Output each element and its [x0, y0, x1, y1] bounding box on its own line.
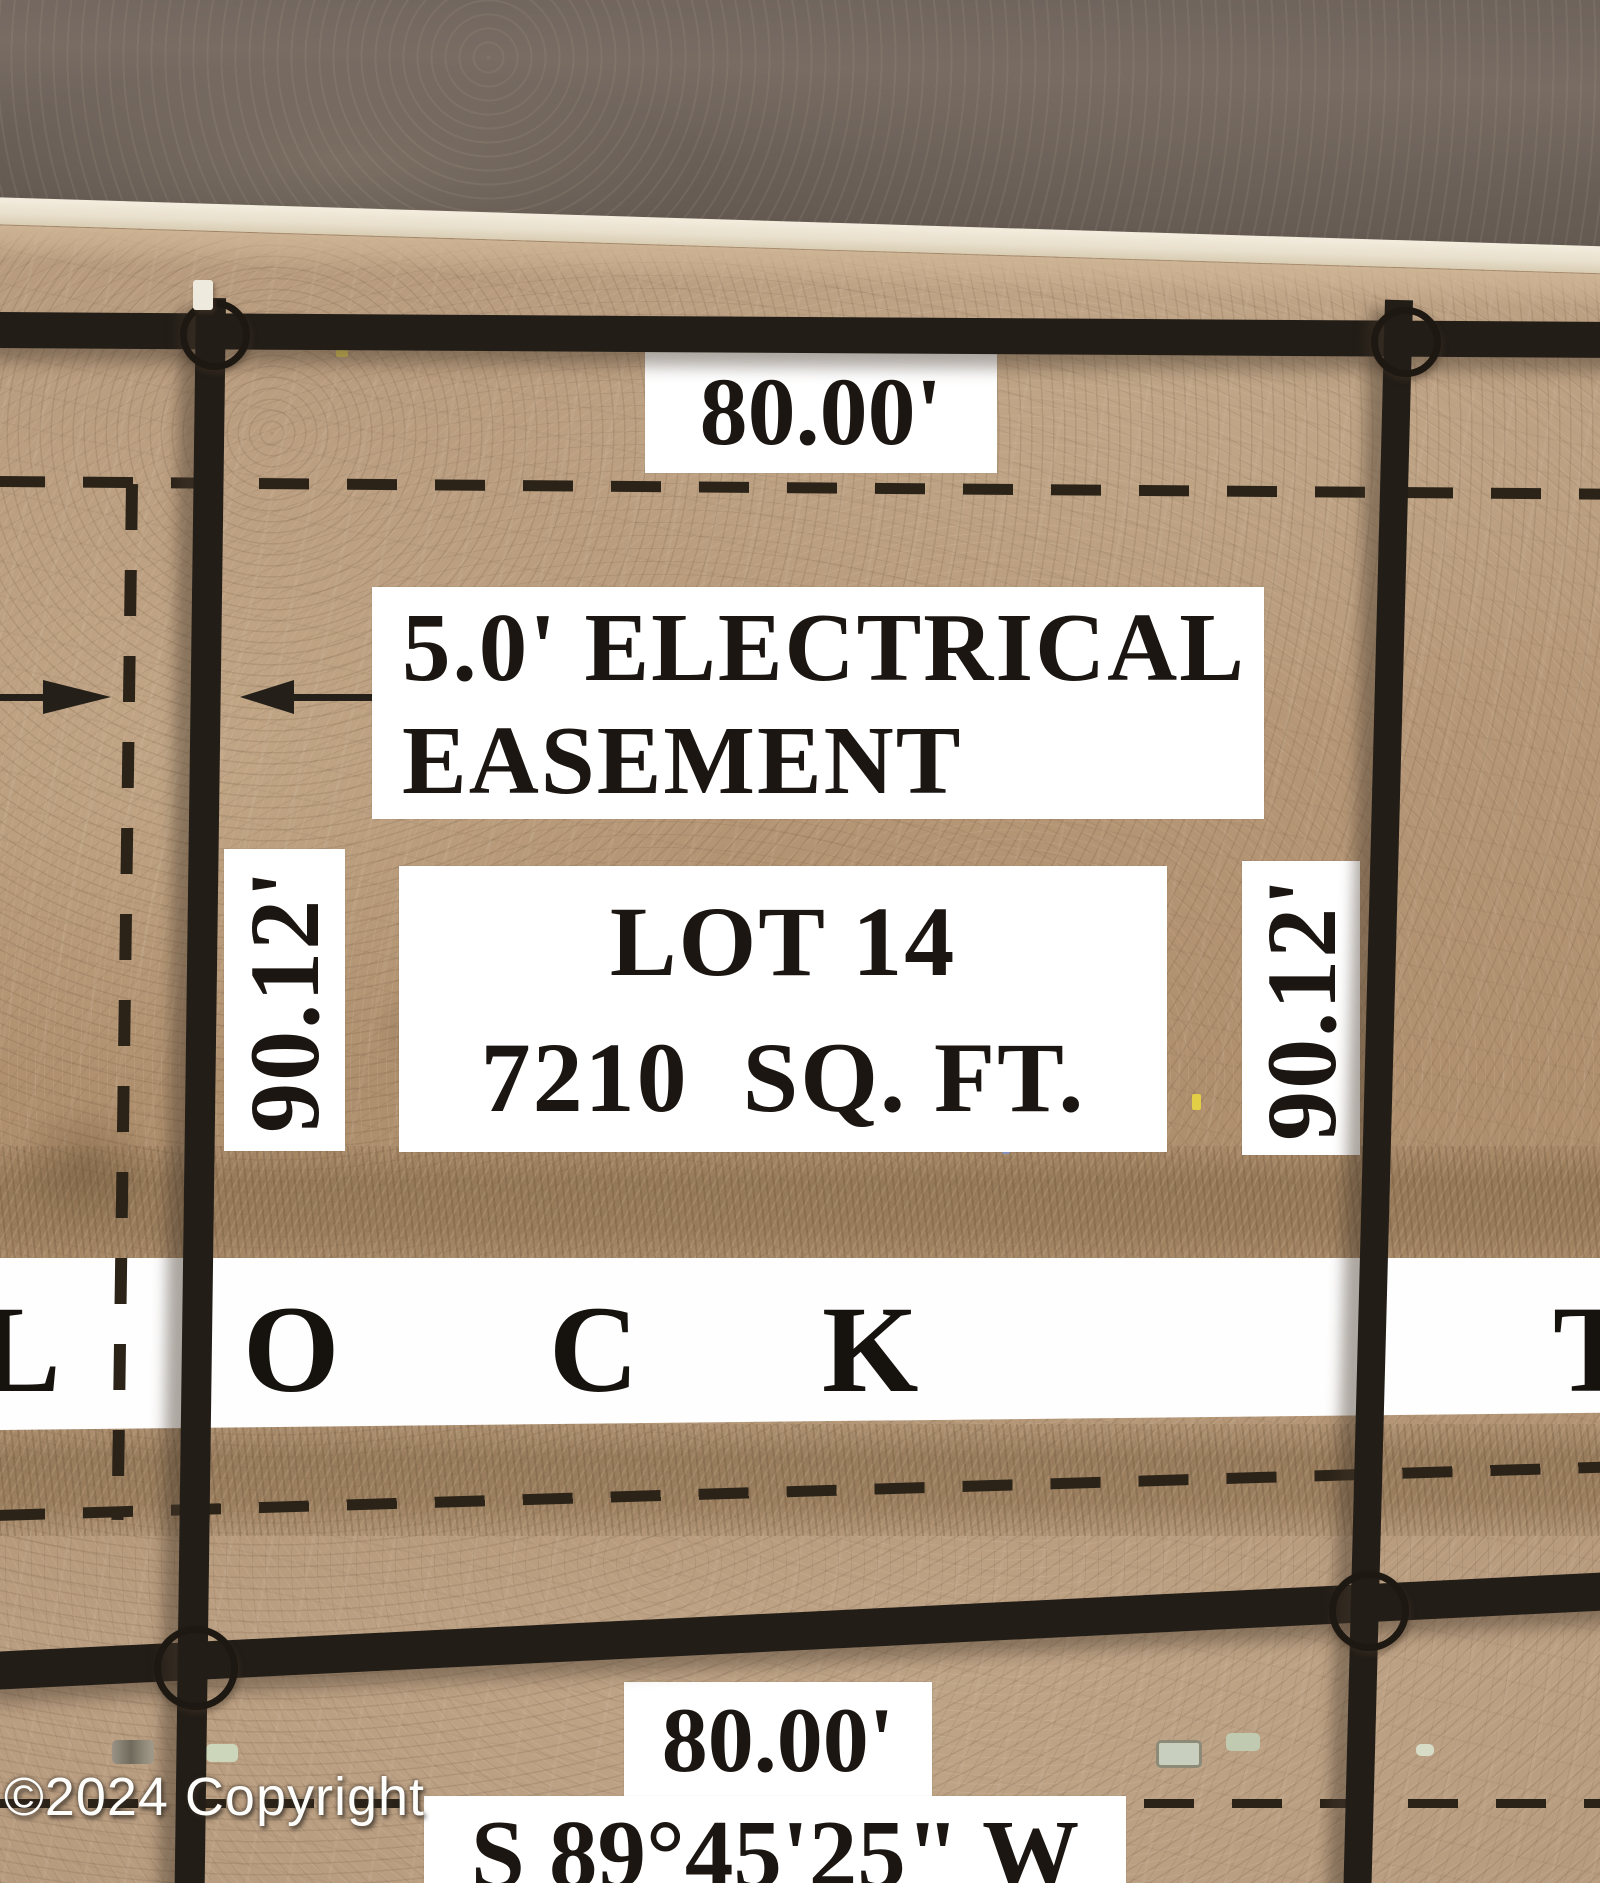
dimension-arrow-tail-left [0, 694, 44, 701]
frontage-dimension-text: 80.00' [700, 358, 943, 465]
parked-vehicle [1226, 1733, 1260, 1751]
easement-label-line1: 5.0' ELECTRICAL [372, 587, 1264, 704]
electrical-easement-label: 5.0' ELECTRICAL EASEMENT [372, 587, 1264, 819]
parked-vehicle [1156, 1740, 1202, 1768]
frontage-dimension-text-south: 80.00' [662, 1689, 895, 1791]
bearing-text: S 89°45'25" W [471, 1801, 1079, 1883]
survey-monument-circle-southwest [154, 1626, 238, 1710]
lot-label: LOT 14 7210 SQ. FT. [399, 866, 1167, 1152]
depth-dimension-text-east: 90.12' [1244, 876, 1359, 1141]
lot-number-text: LOT 14 [399, 866, 1167, 1010]
block-letter-t: T [1553, 1288, 1600, 1412]
survey-monument-circle-southeast [1329, 1571, 1409, 1651]
frontage-dimension-label-south: 80.00' [624, 1682, 932, 1798]
survey-monument-circle-northwest [180, 300, 250, 370]
survey-stake-marker [193, 280, 213, 310]
parked-vehicle [112, 1740, 154, 1764]
depth-dimension-label-east: 90.12' [1242, 861, 1360, 1155]
block-letter-l: L [0, 1288, 61, 1412]
bearing-label: S 89°45'25" W [424, 1796, 1126, 1883]
survey-monument-circle-northeast [1371, 307, 1441, 377]
block-letter-k: K [822, 1288, 918, 1412]
easement-label-line2: EASEMENT [372, 704, 1264, 817]
parked-vehicle [206, 1744, 238, 1762]
depth-dimension-text-west: 90.12' [227, 868, 342, 1133]
dimension-arrowhead-left-pointing [240, 680, 294, 714]
depth-dimension-label-west: 90.12' [224, 849, 345, 1151]
copyright-watermark: ©2024 Copyright [4, 1766, 425, 1828]
scrub-patch [10, 1100, 160, 1230]
block-letter-c: C [549, 1288, 639, 1412]
plat-map-aerial-view: L O C K T 80.00' 5.0' ELECTRICAL EASEMEN… [0, 0, 1600, 1883]
frontage-dimension-label-north: 80.00' [645, 351, 997, 473]
block-letter-o: O [243, 1288, 339, 1412]
lot-area-text: 7210 SQ. FT. [399, 1010, 1167, 1146]
dimension-arrowhead-right-pointing [43, 680, 111, 714]
yellow-debris-speck [1192, 1094, 1201, 1110]
ground-object [1416, 1744, 1434, 1756]
